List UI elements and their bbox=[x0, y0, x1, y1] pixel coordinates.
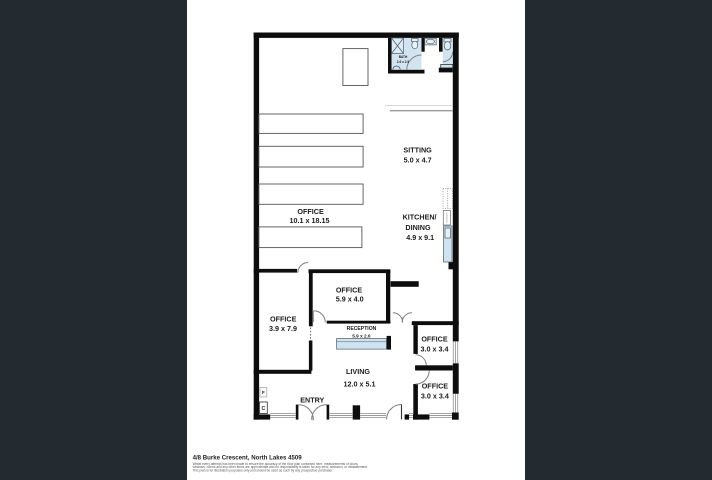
svg-text:4.9 x 9.1: 4.9 x 9.1 bbox=[406, 233, 434, 242]
svg-text:3.0 x 3.4: 3.0 x 3.4 bbox=[421, 345, 449, 354]
svg-text:ENTRY: ENTRY bbox=[300, 396, 324, 405]
svg-text:KITCHEN/: KITCHEN/ bbox=[403, 212, 437, 221]
svg-text:5.0 x 4.7: 5.0 x 4.7 bbox=[404, 156, 432, 165]
svg-text:3.9 x 7.9: 3.9 x 7.9 bbox=[269, 324, 297, 333]
svg-text:This plan is for illustration: This plan is for illustration purposes o… bbox=[193, 469, 334, 473]
svg-text:3.0 x 3.4: 3.0 x 3.4 bbox=[421, 392, 449, 401]
svg-text:4/8 Burke Crescent, North Lake: 4/8 Burke Crescent, North Lakes 4509 bbox=[193, 454, 303, 461]
svg-text:OFFICE: OFFICE bbox=[270, 314, 297, 323]
svg-text:F: F bbox=[262, 390, 265, 395]
svg-text:C: C bbox=[262, 406, 266, 412]
svg-text:5.9 x 2.0: 5.9 x 2.0 bbox=[352, 334, 371, 339]
svg-text:RECEPTION: RECEPTION bbox=[347, 326, 377, 332]
svg-text:OFFICE: OFFICE bbox=[336, 285, 363, 294]
svg-text:12.0 x 5.1: 12.0 x 5.1 bbox=[344, 379, 376, 388]
svg-text:SITTING: SITTING bbox=[403, 146, 432, 155]
svg-text:OFFICE: OFFICE bbox=[421, 335, 448, 344]
svg-text:BATH: BATH bbox=[399, 55, 408, 59]
svg-text:DINING: DINING bbox=[405, 223, 431, 232]
svg-text:5.9 x 4.0: 5.9 x 4.0 bbox=[336, 294, 364, 303]
svg-text:OFFICE: OFFICE bbox=[297, 207, 324, 216]
svg-text:2.6 x 2.5: 2.6 x 2.5 bbox=[397, 60, 410, 64]
svg-text:10.1 x 18.15: 10.1 x 18.15 bbox=[290, 216, 330, 225]
svg-text:LIVING: LIVING bbox=[346, 367, 370, 376]
svg-text:OFFICE: OFFICE bbox=[422, 382, 449, 391]
